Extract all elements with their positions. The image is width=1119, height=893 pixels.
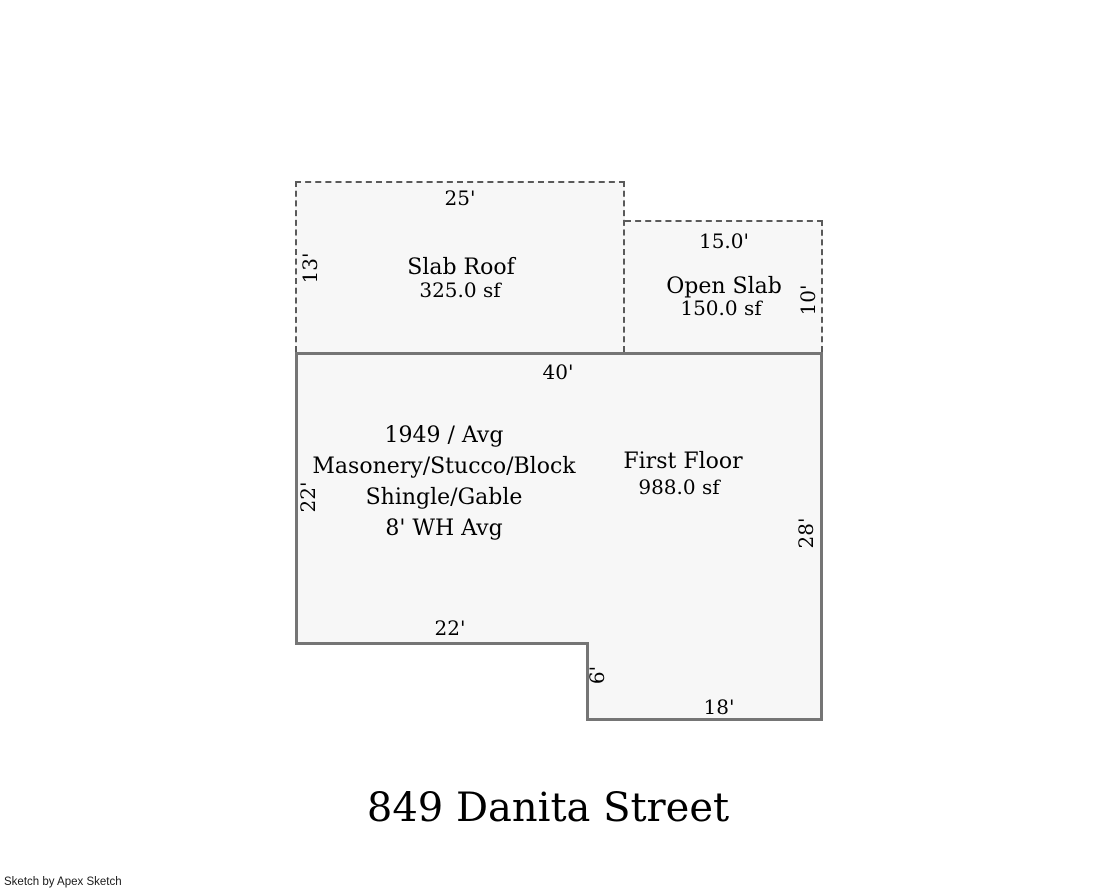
first-floor-right-dim: 28' [796,518,816,549]
first-floor-notch-dim: 6' [587,666,607,684]
slab-roof-width-dim: 25' [445,188,476,208]
sketch-credit: Sketch by Apex Sketch [4,876,122,888]
first-floor-attributes: 1949 / Avg Masonery/Stucco/Block Shingle… [312,420,575,544]
first-floor-name: First Floor [623,451,742,473]
attribute-year-condition: 1949 / Avg [312,420,575,451]
first-floor-bottom-right-dim: 18' [704,697,735,717]
open-slab-height-dim: 10' [798,285,818,316]
slab-roof-name: Slab Roof [407,257,515,279]
first-floor-bottom-left-dim: 22' [435,618,466,638]
open-slab-name: Open Slab [666,276,782,298]
first-floor-area: 988.0 sf [638,477,719,497]
attribute-roof: Shingle/Gable [312,482,575,513]
first-floor-top-dim: 40' [543,362,574,382]
sketch-title: 849 Danita Street [367,785,729,831]
slab-roof-area: 325.0 sf [419,280,500,300]
slab-roof-height-dim: 13' [300,253,320,284]
open-slab-area: 150.0 sf [680,298,761,318]
attribute-wall-height: 8' WH Avg [312,513,575,544]
attribute-exterior: Masonery/Stucco/Block [312,451,575,482]
first-floor-bottom-left-wall [295,642,589,645]
floorplan-sketch: 25' 13' Slab Roof 325.0 sf 15.0' Open Sl… [0,0,1119,893]
open-slab-width-dim: 15.0' [699,231,749,251]
